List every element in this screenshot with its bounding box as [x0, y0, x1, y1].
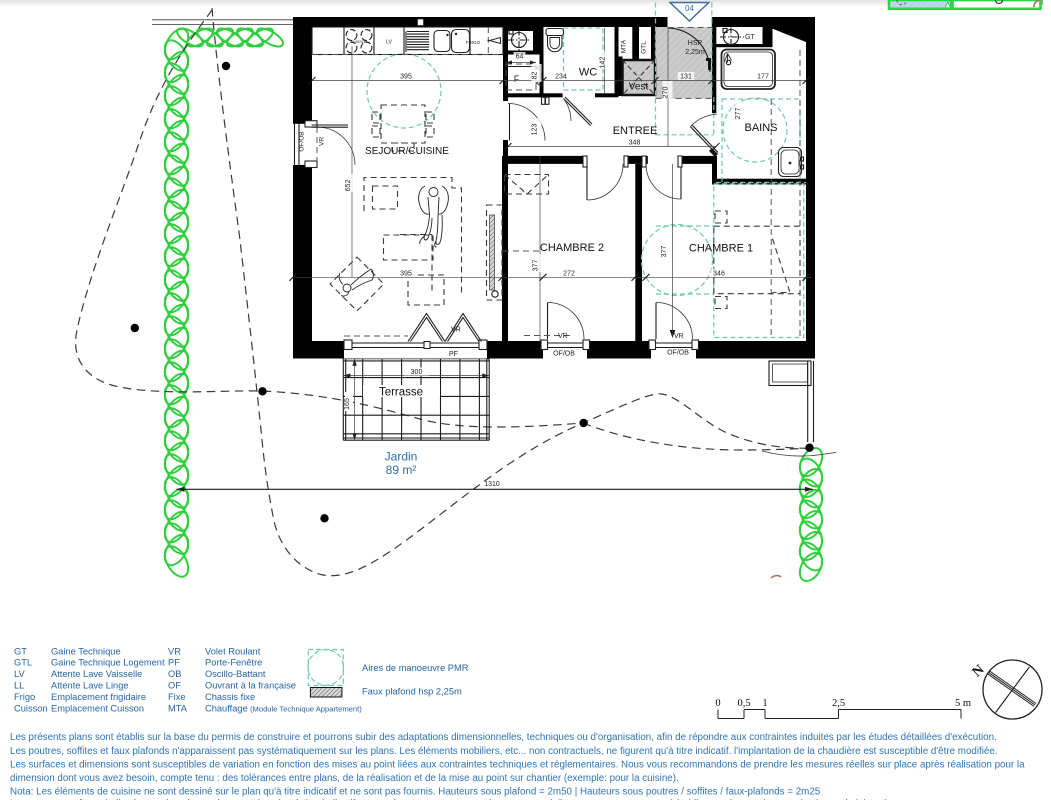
- svg-text:Gaine Technique Logement: Gaine Technique Logement: [51, 658, 165, 668]
- svg-text:Les surfaces et dimensions son: Les surfaces et dimensions sont suscepti…: [10, 759, 1025, 770]
- svg-text:LV: LV: [386, 40, 392, 46]
- svg-text:GT: GT: [745, 34, 755, 41]
- svg-text:PF: PF: [168, 658, 180, 668]
- svg-text:Attente Lave Vaisselle: Attente Lave Vaisselle: [51, 669, 142, 679]
- svg-text:300: 300: [411, 369, 423, 376]
- svg-text:MTA: MTA: [621, 39, 628, 53]
- svg-text:1: 1: [762, 698, 767, 709]
- svg-text:377: 377: [661, 246, 668, 258]
- svg-text:234: 234: [555, 74, 567, 81]
- svg-text:VR: VR: [168, 646, 181, 656]
- svg-text:277: 277: [735, 108, 742, 120]
- svg-text:Chauffage: Chauffage: [205, 703, 248, 713]
- svg-text:Jardin: Jardin: [385, 450, 418, 464]
- svg-text:Volet Roulant: Volet Roulant: [205, 646, 261, 656]
- svg-text:SEJOUR/CUISINE: SEJOUR/CUISINE: [365, 146, 449, 157]
- svg-text:Fixe: Fixe: [168, 692, 186, 702]
- svg-text:64: 64: [516, 54, 524, 61]
- svg-text:(Module Technique Appartement): (Module Technique Appartement): [250, 704, 362, 713]
- svg-text:VR: VR: [451, 327, 461, 334]
- svg-text:Attente Lave Linge: Attente Lave Linge: [51, 681, 129, 691]
- svg-text:142: 142: [600, 57, 607, 69]
- svg-text:WC: WC: [579, 67, 597, 79]
- svg-text:Frigo: Frigo: [14, 692, 35, 702]
- svg-text:PF: PF: [449, 351, 458, 358]
- svg-text:177: 177: [757, 74, 769, 81]
- svg-text:1310: 1310: [484, 481, 500, 488]
- svg-text:CUISSON: CUISSON: [351, 40, 367, 44]
- svg-text:Chassis fixe: Chassis fixe: [205, 692, 255, 702]
- svg-text:Cuisson: Cuisson: [14, 703, 48, 713]
- svg-text:CHAMBRE 2: CHAMBRE 2: [540, 242, 604, 254]
- svg-text:BAINS: BAINS: [744, 122, 777, 134]
- svg-text:OF/OB: OF/OB: [553, 351, 575, 358]
- svg-text:Porte-Fenêtre: Porte-Fenêtre: [205, 658, 262, 668]
- svg-text:Ouvrant à la française: Ouvrant à la française: [205, 681, 296, 691]
- svg-text:272: 272: [563, 270, 575, 277]
- svg-text:0,5: 0,5: [737, 698, 750, 709]
- svg-text:OB: OB: [168, 669, 181, 679]
- svg-text:348: 348: [629, 140, 641, 147]
- svg-text:FRIGO: FRIGO: [466, 40, 481, 45]
- svg-text:OF/OB: OF/OB: [299, 131, 306, 151]
- svg-text:04: 04: [685, 4, 694, 13]
- svg-text:270: 270: [663, 87, 670, 99]
- svg-text:GTL: GTL: [14, 658, 32, 668]
- svg-text:377: 377: [533, 260, 540, 272]
- svg-text:ENTREE: ENTREE: [613, 125, 658, 137]
- svg-text:MTA: MTA: [168, 703, 188, 713]
- svg-text:346: 346: [713, 270, 725, 277]
- svg-text:OF: OF: [168, 681, 181, 691]
- svg-text:Emplacement frigidaire: Emplacement frigidaire: [51, 692, 146, 702]
- svg-text:GTL: GTL: [641, 41, 648, 54]
- svg-text:LL: LL: [14, 681, 24, 691]
- svg-text:89 m²: 89 m²: [386, 463, 417, 477]
- svg-text:GT: GT: [14, 646, 27, 656]
- svg-text:131: 131: [680, 74, 692, 81]
- svg-text:395: 395: [400, 270, 412, 277]
- svg-text:82: 82: [532, 72, 539, 80]
- svg-text:2,25m: 2,25m: [685, 49, 705, 56]
- svg-text:165: 165: [344, 398, 351, 410]
- svg-text:dimension dont vous avez besoi: dimension dont vous avez besoin, compte …: [10, 773, 679, 784]
- svg-text:OF/OB: OF/OB: [667, 350, 689, 357]
- svg-text:Terrasse: Terrasse: [379, 387, 423, 399]
- svg-text:Les présents plans sont établi: Les présents plans sont établis sur la b…: [10, 732, 997, 743]
- svg-text:VR: VR: [674, 333, 684, 340]
- svg-text:Aires de manoeuvre PMR: Aires de manoeuvre PMR: [362, 663, 469, 673]
- svg-text:Vest: Vest: [629, 82, 649, 93]
- svg-text:395: 395: [400, 74, 412, 81]
- svg-text:5 m: 5 m: [955, 698, 971, 709]
- svg-text:652: 652: [345, 180, 352, 192]
- svg-text:CHAMBRE 1: CHAMBRE 1: [689, 243, 753, 255]
- svg-text:Les poutres, soffites et faux: Les poutres, soffites et faux plafonds n…: [10, 746, 998, 757]
- svg-text:Nota: Les éléments de cuisine: Nota: Les éléments de cuisine ne sont de…: [10, 787, 821, 798]
- svg-text:0: 0: [715, 698, 720, 709]
- svg-text:F: F: [514, 74, 520, 84]
- svg-text:Oscillo-Battant: Oscillo-Battant: [205, 669, 266, 679]
- svg-text:LV: LV: [14, 669, 25, 679]
- svg-text:VR: VR: [558, 333, 568, 340]
- svg-text:123: 123: [532, 124, 539, 136]
- svg-text:Faux plafond hsp 2,25m: Faux plafond hsp 2,25m: [362, 687, 462, 697]
- svg-text:2,5: 2,5: [832, 698, 845, 709]
- svg-text:Emplacement Cuisson: Emplacement Cuisson: [51, 703, 144, 713]
- svg-text:HSP: HSP: [688, 40, 703, 47]
- svg-text:VR: VR: [319, 137, 326, 146]
- svg-text:Gaine Technique: Gaine Technique: [51, 646, 121, 656]
